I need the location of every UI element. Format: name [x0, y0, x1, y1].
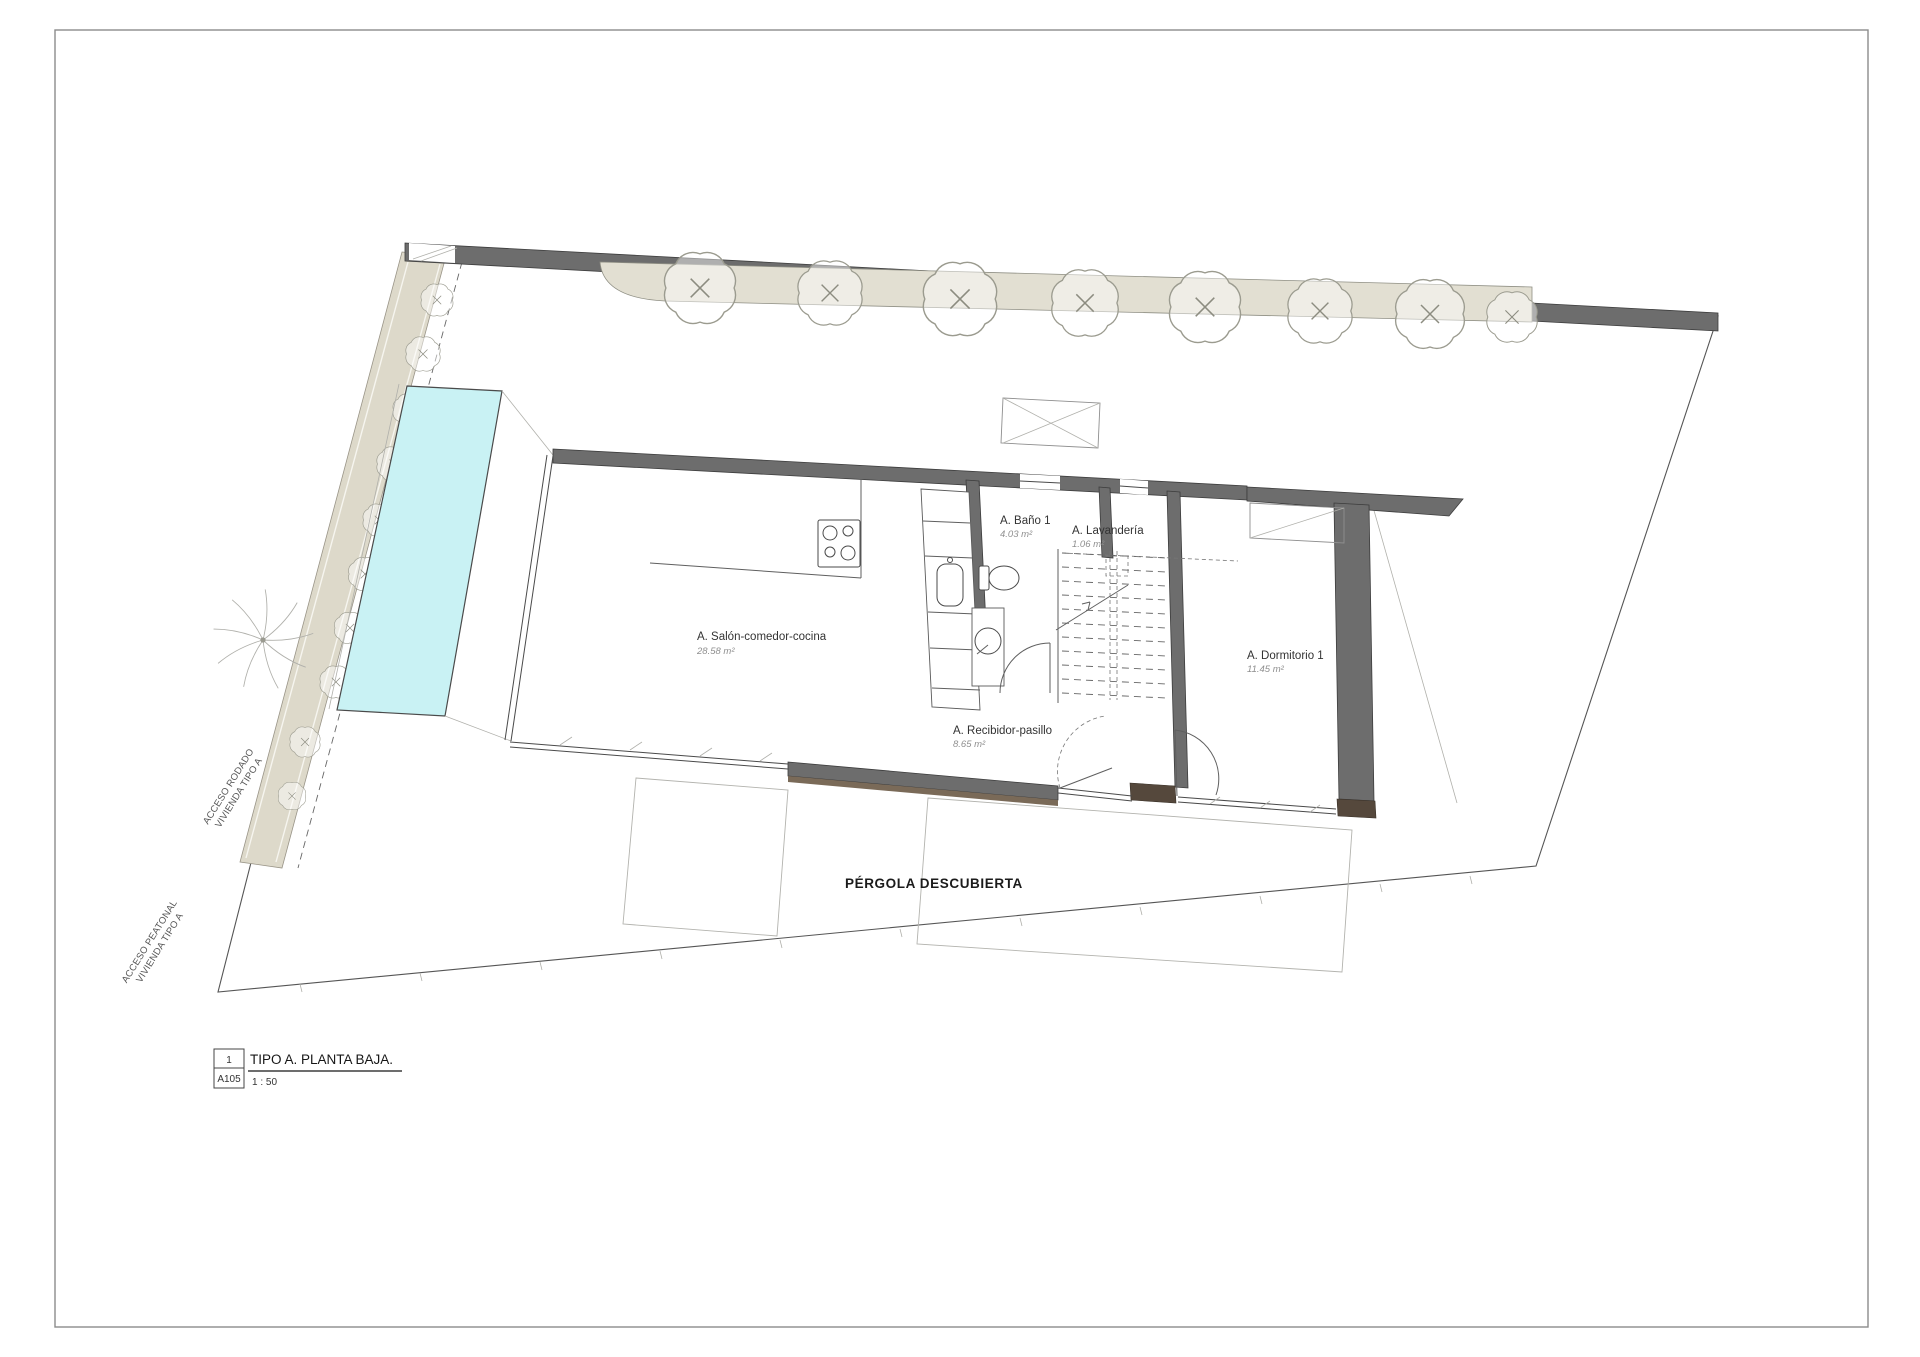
bedroom-east-wall — [1334, 503, 1374, 801]
laundry — [1062, 553, 1238, 576]
room-area-salon: 28.58 m² — [696, 646, 735, 657]
drawing-sheet: A. Salón-comedor-cocina 28.58 m² A. Baño… — [0, 0, 1920, 1357]
staircase — [1056, 549, 1166, 703]
kitchen-sink — [937, 564, 963, 606]
room-label-recibidor: A. Recibidor-pasillo — [953, 725, 1052, 737]
view-title: TIPO A. PLANTA BAJA. — [250, 1052, 393, 1067]
room-labels: A. Salón-comedor-cocina 28.58 m² A. Baño… — [696, 515, 1324, 750]
bedroom-wardrobe — [1250, 503, 1344, 543]
floor-plan-canvas: A. Salón-comedor-cocina 28.58 m² A. Baño… — [0, 0, 1920, 1357]
room-label-salon: A. Salón-comedor-cocina — [697, 631, 827, 643]
room-label-lavanderia: A. Lavandería — [1072, 525, 1144, 537]
pergola-label: PÉRGOLA DESCUBIERTA — [845, 876, 1023, 891]
glazing — [505, 455, 1336, 814]
sheet-code: A105 — [217, 1074, 241, 1085]
room-label-bano: A. Baño 1 — [1000, 515, 1051, 527]
cooktop — [818, 520, 860, 567]
view-scale: 1 : 50 — [252, 1077, 277, 1088]
toilet-bowl — [989, 566, 1019, 590]
entry-door-swing — [1057, 716, 1105, 788]
room-area-dormitorio: 11.45 m² — [1247, 664, 1285, 675]
room-label-dormitorio: A. Dormitorio 1 — [1247, 650, 1324, 662]
hedge-strip — [600, 253, 1537, 349]
skylight-outline — [1001, 398, 1100, 448]
entry-timber-cap — [1130, 783, 1176, 803]
entry-door-leaf — [1060, 768, 1112, 788]
kitchen — [650, 479, 980, 710]
house-walls — [553, 449, 1463, 818]
view-number: 1 — [226, 1055, 232, 1066]
gate-opening — [409, 243, 455, 263]
title-block: 1 A105 TIPO A. PLANTA BAJA. 1 : 50 — [214, 1049, 402, 1088]
wash-basin — [975, 628, 1001, 654]
access-pedestrian-label: ACCESO PEATONAL VIVIENDA TIPO A — [120, 898, 190, 991]
toilet-tank — [979, 566, 989, 590]
bathroom — [972, 566, 1050, 693]
room-area-lavanderia: 1.06 m² — [1072, 539, 1105, 550]
room-area-bano: 4.03 m² — [1000, 529, 1033, 540]
stair-direction-arrow — [1082, 602, 1090, 610]
stair-east-wall — [1167, 491, 1188, 788]
room-area-recibidor: 8.65 m² — [953, 739, 986, 750]
bathroom-door-swing — [1000, 643, 1050, 693]
bedroom-wall-timber-cap — [1337, 799, 1376, 818]
